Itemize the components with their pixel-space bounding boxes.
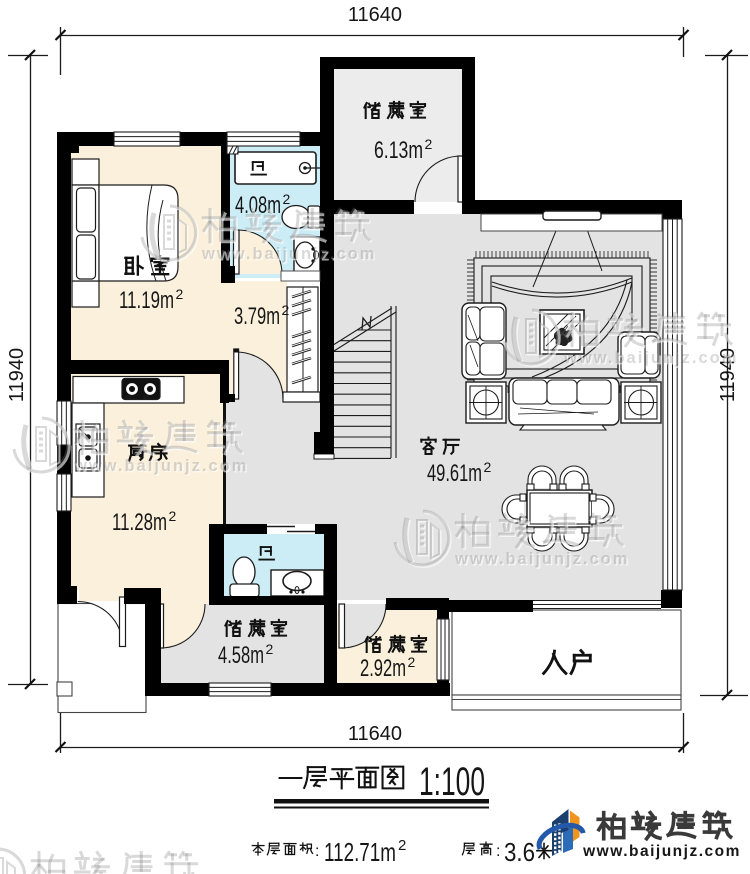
svg-text:2.92m: 2.92m (360, 655, 406, 682)
svg-text:11640: 11640 (348, 723, 402, 745)
svg-text:2: 2 (282, 302, 290, 318)
svg-text:2: 2 (283, 191, 291, 207)
svg-text:3.6: 3.6 (504, 837, 535, 867)
svg-text:6.13m: 6.13m (374, 137, 423, 164)
svg-text:11.19m: 11.19m (119, 287, 174, 314)
svg-text:4.58m: 4.58m (218, 642, 264, 669)
svg-text::: : (496, 843, 500, 860)
svg-text:11.28m: 11.28m (112, 509, 167, 536)
svg-text:112.71m: 112.71m (324, 837, 396, 867)
svg-text:2: 2 (266, 641, 274, 657)
svg-text:www.baijunjz.com: www.baijunjz.com (582, 843, 741, 860)
svg-text:3.79m: 3.79m (234, 303, 280, 330)
svg-text:1:100: 1:100 (419, 760, 485, 804)
svg-text:49.61m: 49.61m (427, 460, 482, 487)
svg-text:2: 2 (408, 654, 416, 670)
svg-text:2: 2 (398, 837, 406, 854)
svg-text:2: 2 (484, 459, 492, 475)
svg-text:11940: 11940 (6, 348, 28, 402)
svg-text::: : (315, 843, 319, 860)
svg-text:2: 2 (169, 508, 177, 524)
svg-text:2: 2 (176, 286, 184, 302)
svg-text:11640: 11640 (348, 4, 402, 26)
svg-text:2: 2 (425, 136, 433, 152)
